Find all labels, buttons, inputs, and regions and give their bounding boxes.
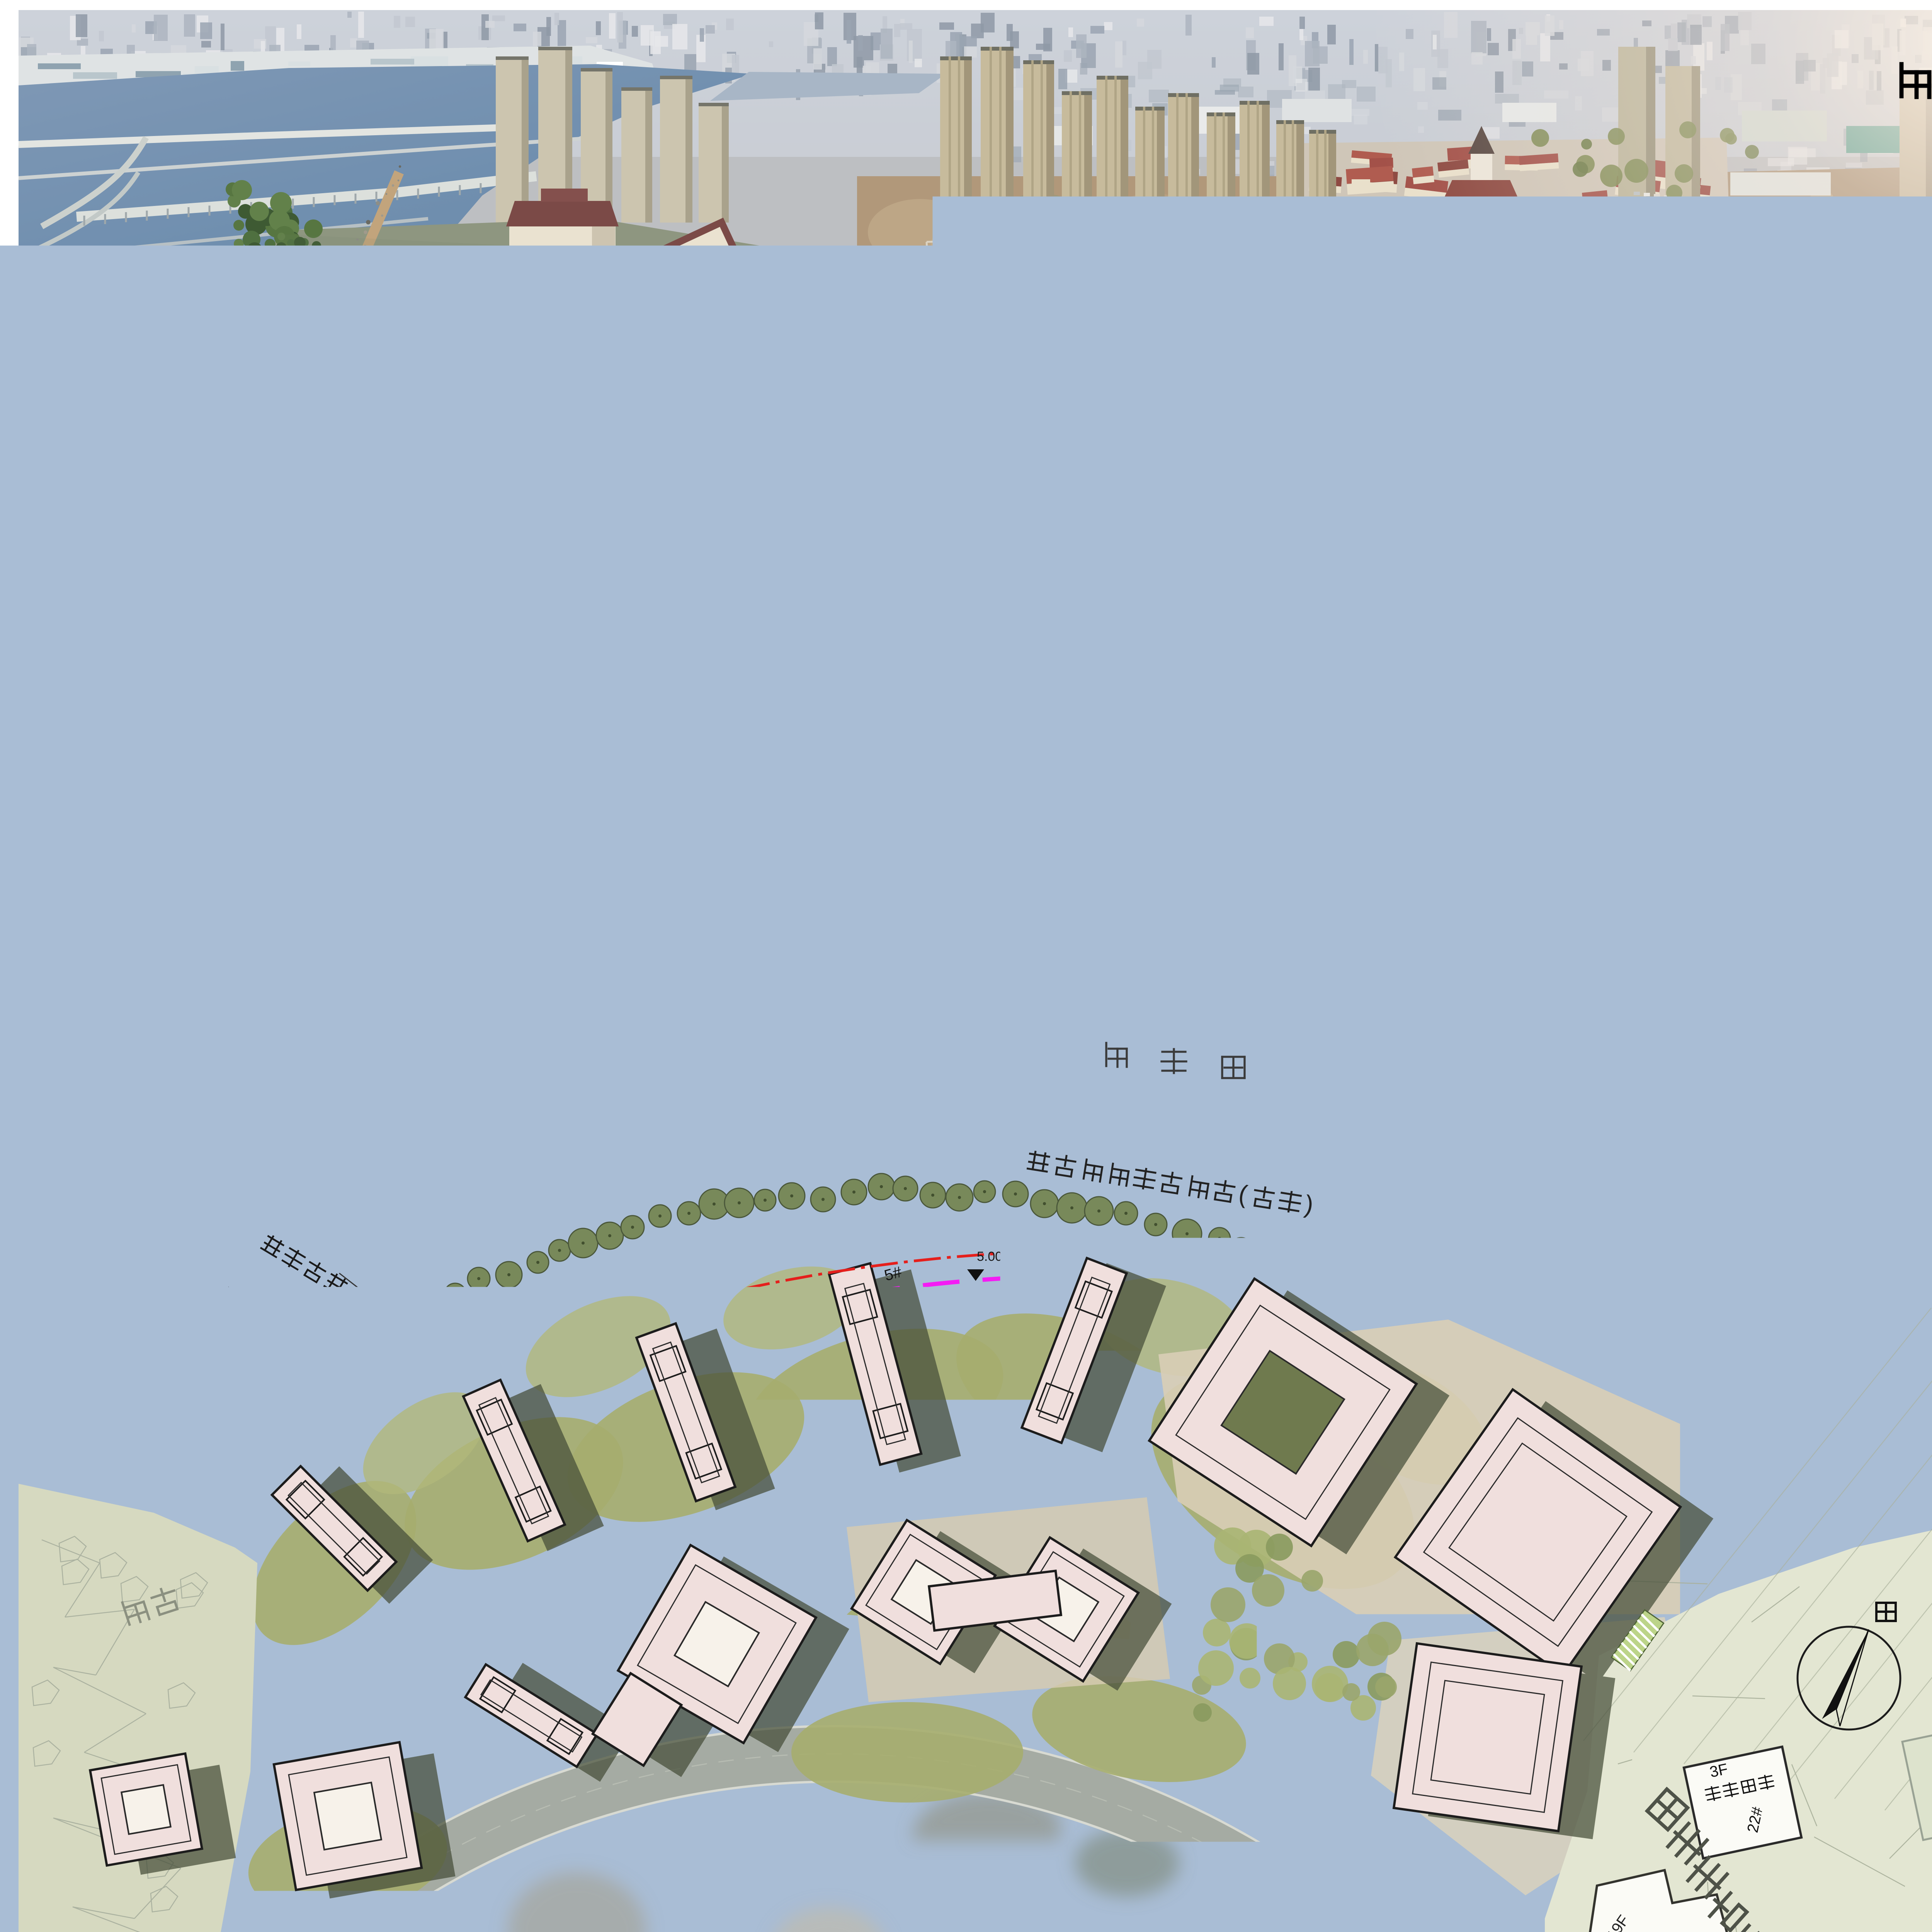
svg-text:7: 7	[840, 1731, 848, 1747]
svg-text:4.30: 4.30	[389, 1754, 415, 1769]
svg-text:1#: 1#	[1475, 1672, 1497, 1693]
svg-text:.: .	[826, 1731, 830, 1747]
svg-text:3#: 3#	[1224, 1362, 1243, 1381]
svg-text:4.60: 4.60	[1396, 1361, 1422, 1376]
svg-text:1: 1	[833, 1731, 840, 1747]
svg-text:9#: 9#	[329, 1752, 349, 1771]
svg-text:4.50: 4.50	[621, 1660, 647, 1674]
svg-text:4: 4	[818, 1731, 826, 1747]
svg-text:4.60: 4.60	[826, 1546, 852, 1560]
svg-text:4.70: 4.70	[1131, 1426, 1157, 1440]
svg-text:7F: 7F	[992, 1415, 1009, 1431]
svg-text:4.40: 4.40	[167, 1709, 193, 1724]
svg-text:5.00: 5.00	[977, 1249, 1002, 1264]
svg-text:4.60: 4.60	[1340, 1833, 1366, 1848]
svg-text:6.00: 6.00	[185, 1528, 210, 1543]
svg-text:4.30: 4.30	[977, 1717, 1002, 1731]
